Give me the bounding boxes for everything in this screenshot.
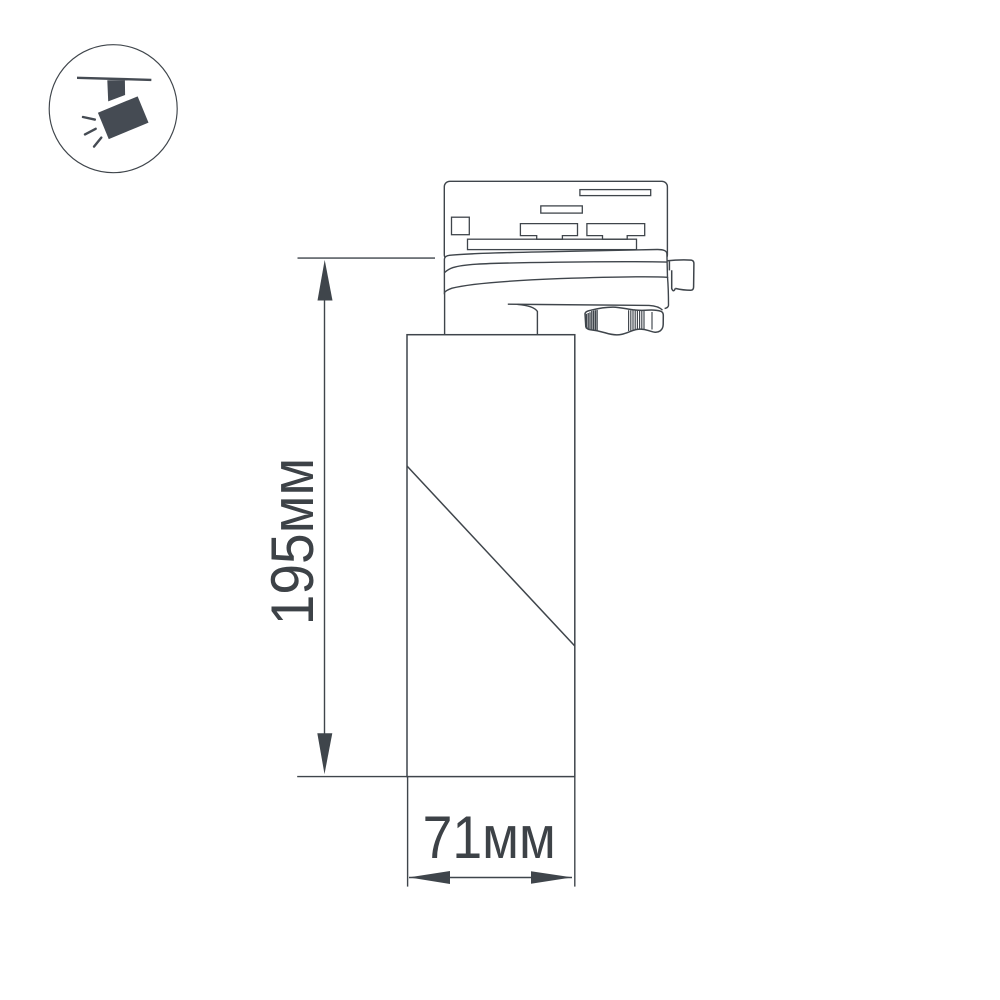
svg-text:195мм: 195мм (260, 458, 327, 626)
svg-text:71мм: 71мм (423, 804, 556, 872)
